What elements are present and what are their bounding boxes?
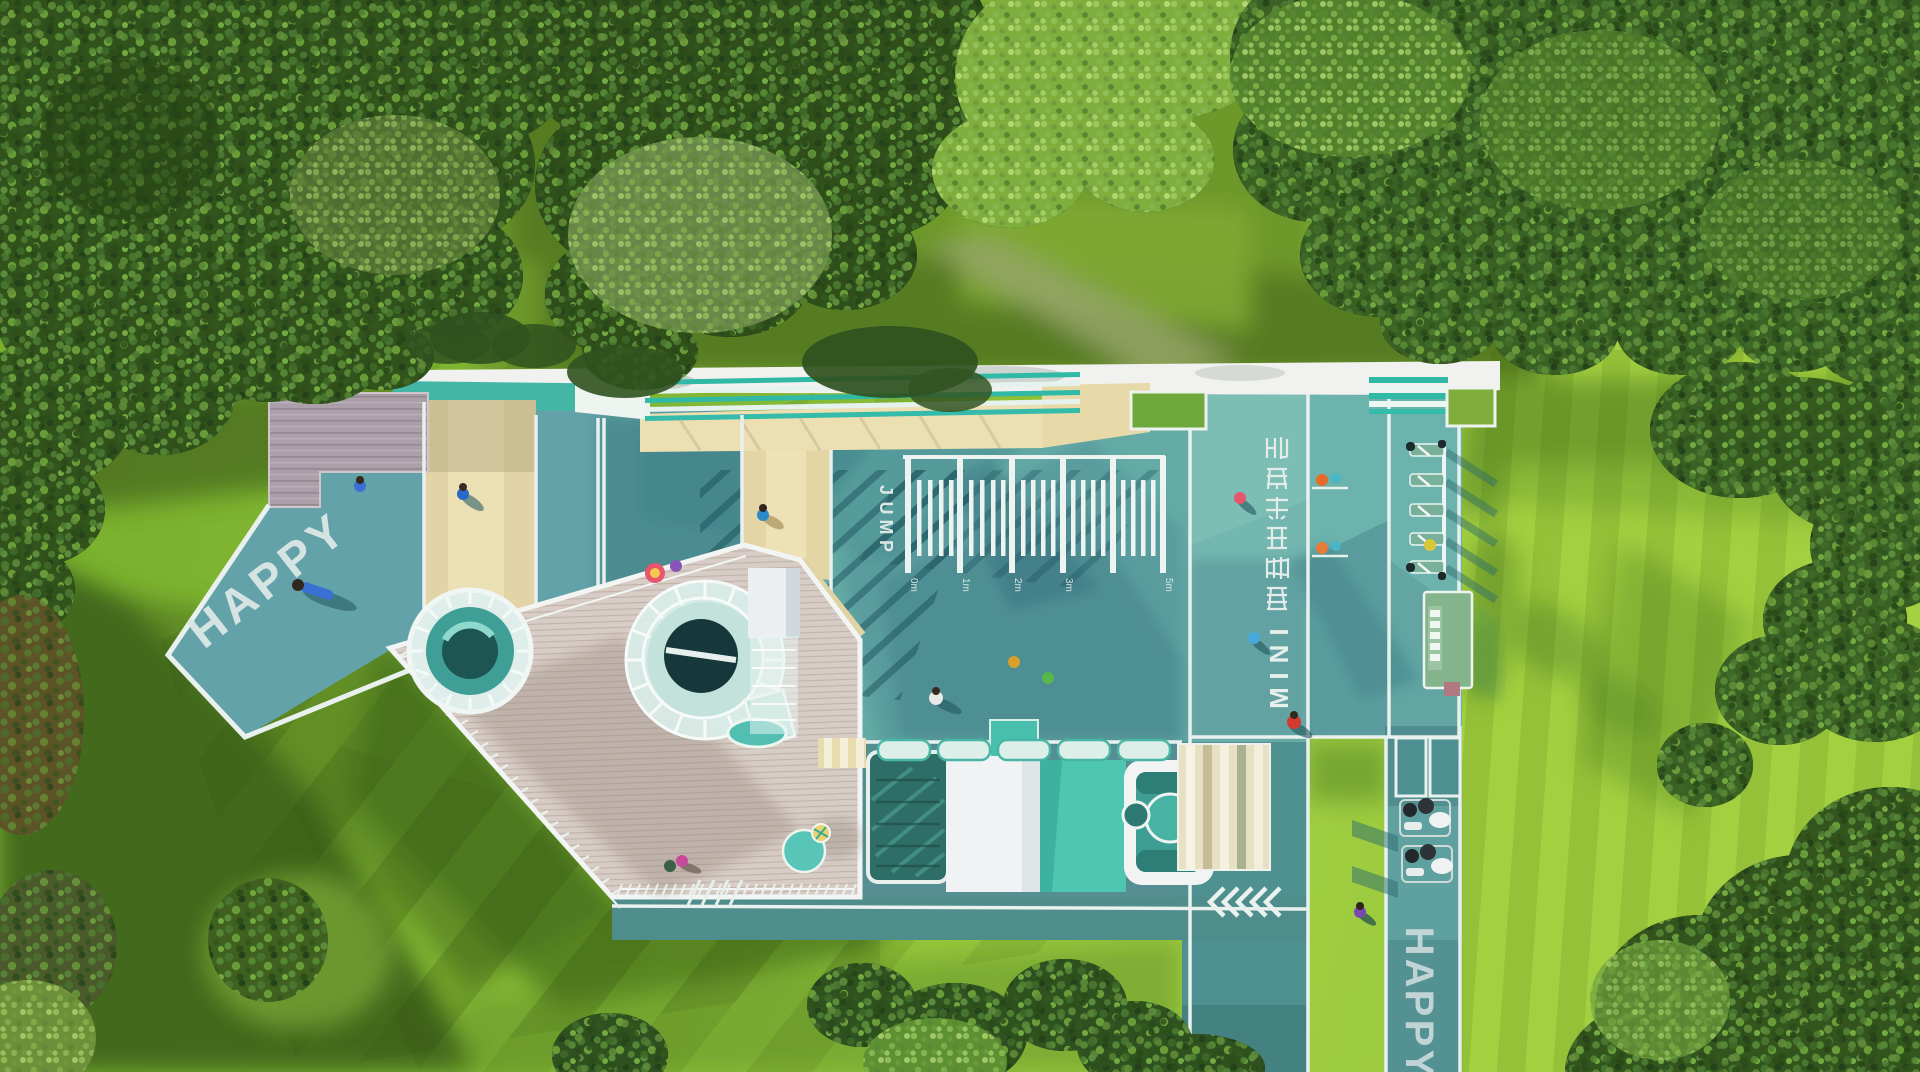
- svg-text:0m: 0m: [908, 578, 919, 592]
- svg-text:A: A: [1397, 959, 1441, 988]
- svg-text:N: N: [1264, 645, 1294, 664]
- svg-text:U: U: [876, 502, 896, 515]
- svg-text:J: J: [876, 485, 896, 495]
- svg-text:P: P: [876, 540, 896, 552]
- svg-text:1m: 1m: [960, 578, 971, 592]
- svg-text:P: P: [1397, 1020, 1441, 1047]
- svg-text:I: I: [1264, 672, 1294, 679]
- svg-text:Y: Y: [1397, 1050, 1441, 1072]
- svg-text:5m: 5m: [1163, 578, 1174, 592]
- svg-text:H: H: [1397, 927, 1441, 956]
- svg-text:2m: 2m: [1012, 578, 1023, 592]
- svg-text:M: M: [1264, 687, 1294, 709]
- svg-text:I: I: [1264, 628, 1294, 635]
- svg-text:M: M: [876, 520, 896, 535]
- svg-text:3m: 3m: [1063, 578, 1074, 592]
- svg-text:P: P: [1397, 990, 1441, 1017]
